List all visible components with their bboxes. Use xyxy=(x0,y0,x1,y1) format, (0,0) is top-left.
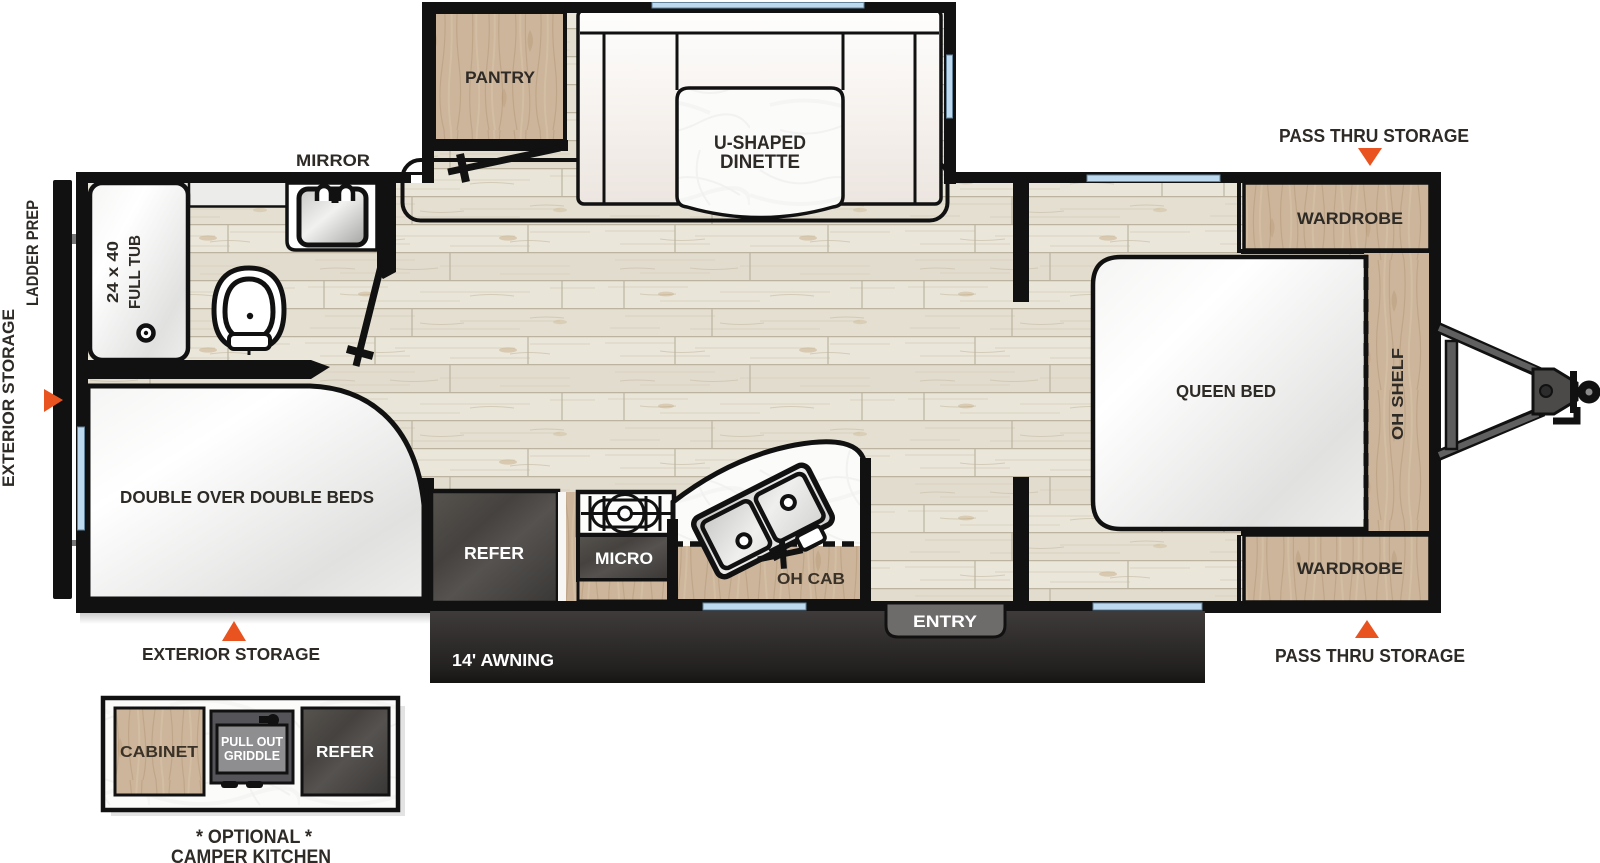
svg-text:LADDER PREP: LADDER PREP xyxy=(23,200,42,306)
svg-text:14' AWNING: 14' AWNING xyxy=(452,650,554,670)
svg-text:OH CAB: OH CAB xyxy=(777,571,845,588)
svg-text:FULL TUB: FULL TUB xyxy=(127,235,144,309)
svg-text:EXTERIOR STORAGE: EXTERIOR STORAGE xyxy=(142,644,320,664)
svg-text:QUEEN BED: QUEEN BED xyxy=(1176,381,1276,401)
svg-text:CAMPER KITCHEN: CAMPER KITCHEN xyxy=(171,846,331,863)
svg-text:PULL OUT: PULL OUT xyxy=(221,735,283,749)
svg-text:MICRO: MICRO xyxy=(595,550,653,568)
svg-text:* OPTIONAL *: * OPTIONAL * xyxy=(196,826,312,848)
svg-text:DINETTE: DINETTE xyxy=(720,152,800,173)
svg-text:U-SHAPED: U-SHAPED xyxy=(714,133,806,154)
svg-text:PANTRY: PANTRY xyxy=(465,68,536,87)
svg-text:DOUBLE OVER DOUBLE BEDS: DOUBLE OVER DOUBLE BEDS xyxy=(120,487,374,507)
svg-text:REFER: REFER xyxy=(316,744,374,761)
svg-text:PASS THRU STORAGE: PASS THRU STORAGE xyxy=(1275,646,1465,666)
svg-text:WARDROBE: WARDROBE xyxy=(1297,209,1403,228)
svg-text:ENTRY: ENTRY xyxy=(913,613,977,631)
svg-text:REFER: REFER xyxy=(464,543,524,563)
svg-text:OH SHELF: OH SHELF xyxy=(1390,348,1407,440)
svg-text:MIRROR: MIRROR xyxy=(296,151,370,170)
svg-text:WARDROBE: WARDROBE xyxy=(1297,559,1403,578)
svg-text:PASS THRU STORAGE: PASS THRU STORAGE xyxy=(1279,126,1469,146)
svg-text:CABINET: CABINET xyxy=(120,744,199,761)
svg-text:24 x 40: 24 x 40 xyxy=(105,241,122,303)
svg-text:GRIDDLE: GRIDDLE xyxy=(224,749,280,763)
svg-text:EXTERIOR STORAGE: EXTERIOR STORAGE xyxy=(0,309,18,487)
